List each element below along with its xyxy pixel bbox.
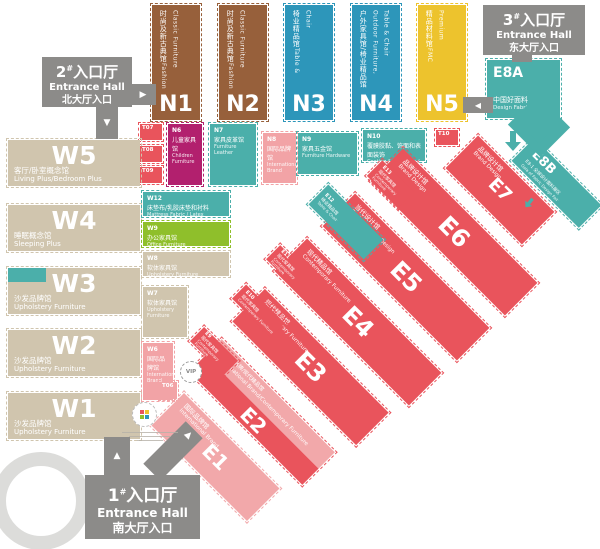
hall-caption: 精品材料馆FMC Premium [423, 10, 445, 91]
hall-n4[interactable]: 户外家具馆/椅业精品馆Outdoor Furniture, Table & Ch… [352, 5, 400, 120]
hall-name-zh: 客厅/卧室概念馆 [14, 166, 102, 175]
hall-caption: 户外家具馆/椅业精品馆Outdoor Furniture, Table & Ch… [357, 10, 391, 91]
arrow-down-icon [531, 124, 547, 144]
entrance-title: 3#入口厅 [483, 9, 585, 30]
entrance-2-arm-right: ▶ [130, 84, 156, 105]
hall-caption: 时尚及新古典馆Fashion Classic Furniture [224, 10, 246, 91]
hall-code: N4 [352, 92, 400, 117]
hall-name-en: Children Furniture [172, 154, 198, 166]
ring-road [0, 452, 90, 549]
entrance-3-stub [512, 55, 532, 62]
hall-name-zh: 沙发品牌馆 [14, 356, 86, 365]
entrance-subtitle: 东大厅入口 [483, 43, 585, 56]
hall-name-zh: 户外家具馆/椅业精品馆 [359, 10, 367, 88]
hall-name-zh: 椅业精品馆 [292, 10, 300, 48]
hall-w7[interactable]: W7软体家具馆Upholstery Furniture [143, 287, 187, 337]
hall-n2[interactable]: 时尚及新古典馆Fashion Classic FurnitureN2 [219, 5, 267, 120]
hall-w2[interactable]: W2沙发品牌馆Upholstery Furniture [8, 330, 140, 376]
hall-name-zh: 国际品牌馆 [147, 354, 169, 372]
hall-code: N6 [172, 127, 198, 134]
hall-name-zh: 时尚及新古典馆 [159, 10, 167, 63]
entrance-title-en: Entrance Hall [85, 506, 200, 521]
hall-n8[interactable]: N8国际品牌馆International Brand [263, 133, 296, 183]
hall-name-en: Furniture Leather [214, 145, 252, 157]
hall-name-zh: 国际品牌馆 [267, 144, 292, 162]
hall-w9[interactable]: W9办公家具馆Office Furniture [143, 222, 229, 246]
entrance-hall-2[interactable]: 2#入口厅 Entrance Hall 北大厅入口 [42, 57, 132, 107]
hall-code: W8 [147, 255, 225, 262]
hall-t10[interactable]: T10 [436, 130, 458, 145]
entrance-title-en: Entrance Hall [42, 82, 132, 95]
hall-name-en: Upholstery Furniture [147, 273, 225, 279]
hall-name-en: Upholstery Furniture [14, 428, 86, 436]
hall-caption: 沙发品牌馆Upholstery Furniture [14, 419, 86, 436]
hall-n5[interactable]: 精品材料馆FMC PremiumN5 [418, 5, 466, 120]
hall-t07[interactable]: T07 [140, 124, 162, 140]
hall-name-en: Sleeping Plus [14, 240, 61, 248]
hall-name-zh: 家具五金馆 [302, 144, 353, 153]
hall-name-en: Living Plus/Bedroom Plus [14, 175, 102, 183]
hall-name-zh: 睡眠概念馆 [14, 231, 61, 240]
hall-code: W7 [147, 290, 183, 297]
entrance-title-en: Entrance Hall [483, 30, 585, 43]
hall-code: N5 [418, 92, 466, 117]
hall-code: T07 [140, 124, 162, 131]
hall-code: N9 [302, 136, 353, 143]
entrance-title: 2#入口厅 [42, 61, 132, 82]
hall-name-zh: 时尚及新古典馆 [226, 10, 234, 63]
vip-badge: VIP [180, 361, 202, 383]
hall-name-en: Office Furniture [147, 243, 225, 249]
hall-w8[interactable]: W8软体家具馆Upholstery Furniture [143, 252, 229, 276]
hall-code: T10 [436, 130, 458, 137]
hall-name-zh: 儿童家具馆 [172, 135, 198, 153]
entrance-subtitle: 南大厅入口 [85, 521, 200, 536]
hall-name-zh: 沙发品牌馆 [14, 294, 86, 303]
hall-code: T08 [140, 146, 162, 153]
hall-code: N2 [219, 92, 267, 117]
hall-name-en: Upholstery Furniture [14, 365, 86, 373]
event-logo [132, 402, 157, 427]
hall-n9[interactable]: N9家具五金馆Furniture Hardware [298, 133, 357, 174]
hall-w4[interactable]: W4睡眠概念馆Sleeping Plus [8, 205, 140, 251]
hall-caption: 睡眠概念馆Sleeping Plus [14, 231, 61, 248]
hall-code: N8 [267, 136, 292, 143]
entrance-hall-3[interactable]: 3#入口厅 Entrance Hall 东大厅入口 [483, 5, 585, 55]
hall-name-zh: 软体家具馆 [147, 263, 225, 272]
hall-name-zh: 软体家具馆 [147, 298, 183, 307]
hall-caption: 沙发品牌馆Upholstery Furniture [14, 356, 86, 373]
hall-name-zh: 家具皮革馆 [214, 135, 252, 144]
hall-n7[interactable]: N7家具皮革馆Furniture Leather [210, 124, 256, 185]
hall-name-en: Upholstery Furniture [14, 303, 86, 311]
hall-code: T06 [160, 382, 177, 389]
hall-name-zh: 办公家具馆 [147, 233, 225, 242]
hall-name-en: Outdoor Furniture, Table & Chair [371, 10, 389, 74]
hall-caption: 时尚及新古典馆Fashion Classic Furniture [157, 10, 179, 91]
hall-t09[interactable]: T09 [140, 167, 162, 183]
hall-name-zh: 中国好面料 [493, 96, 530, 105]
hall-name-zh: 沙发品牌馆 [14, 419, 86, 428]
hall-t06[interactable]: T06 [160, 382, 177, 399]
hall-n6[interactable]: N6儿童家具馆Children Furniture [168, 124, 202, 185]
exhibition-floor-plan: 时尚及新古典馆Fashion Classic FurnitureN1时尚及新古典… [0, 0, 600, 549]
entrance-subtitle: 北大厅入口 [42, 95, 132, 108]
hall-code: W9 [147, 225, 225, 232]
hall-code: N1 [152, 92, 200, 117]
hall-n3[interactable]: 椅业精品馆Table & ChairN3 [285, 5, 333, 120]
hall-w12[interactable]: W12床垫布/乳胶床垫和衬料Mattress Fabric / Latex Ho… [143, 192, 229, 216]
hall-code: N10 [367, 133, 421, 140]
hall-name-en: Furniture Hardware [302, 154, 353, 160]
fine-print-lines [118, 429, 182, 444]
hall-code: W6 [147, 346, 169, 353]
entrance-2-stem-down: ▼ [96, 107, 118, 139]
logo-glyph-icon [140, 410, 149, 419]
hall-name-zh: 精品材料馆 [425, 10, 433, 48]
hall-w5[interactable]: W5客厅/卧室概念馆Living Plus/Bedroom Plus [8, 140, 140, 186]
vip-label: VIP [186, 369, 196, 375]
hall-w3-notch [8, 268, 46, 282]
hall-name-en: International Brand [267, 163, 292, 175]
hall-code: N3 [285, 92, 333, 117]
hall-code: E8A [493, 65, 554, 81]
arrow-down-icon [505, 131, 521, 151]
hall-n1[interactable]: 时尚及新古典馆Fashion Classic FurnitureN1 [152, 5, 200, 120]
entrance-hall-1[interactable]: 1#入口厅 Entrance Hall 南大厅入口 [85, 475, 200, 539]
e8a-left-arrow: ◀ [463, 97, 493, 113]
hall-caption: 椅业精品馆Table & Chair [290, 10, 312, 91]
hall-caption: 客厅/卧室概念馆Living Plus/Bedroom Plus [14, 166, 102, 183]
hall-name-en: Upholstery Furniture [147, 308, 183, 320]
hall-t08[interactable]: T08 [140, 146, 162, 162]
hall-code: T09 [140, 167, 162, 174]
hall-code: N7 [214, 127, 252, 134]
hall-name-zh: 床垫布/乳胶床垫和衬料 [147, 203, 225, 212]
entrance-title: 1#入口厅 [85, 481, 200, 506]
hall-code: W12 [147, 195, 225, 202]
hall-caption: 沙发品牌馆Upholstery Furniture [14, 294, 86, 311]
